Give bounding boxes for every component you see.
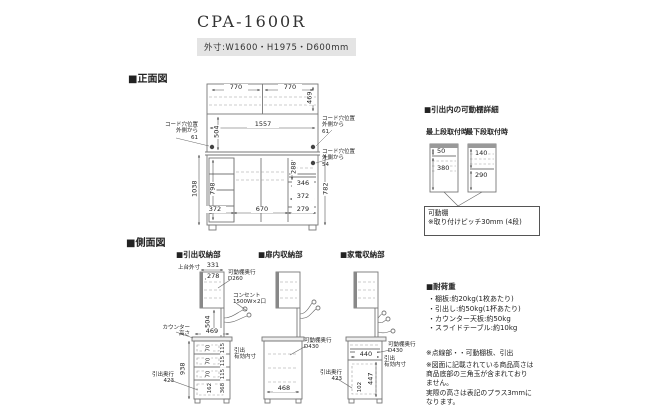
upper-outer-dim-label: 上台外寸 xyxy=(178,265,200,271)
drawer-pitch-dim-3: 115 xyxy=(220,368,226,381)
dim-469: 469 xyxy=(306,91,313,105)
dim-468: 468 xyxy=(273,385,295,392)
side-door-heading: ■扉内収納部 xyxy=(258,251,303,260)
dim-1038: 1038 xyxy=(192,179,199,198)
shelf-top-position-label: 最上段取付時 xyxy=(426,128,468,136)
drawer-inner-dim-1: 70 xyxy=(205,344,211,353)
dim-469-side: 469 xyxy=(201,328,223,335)
shelf-detail-heading: ■引出内の可動棚詳細 xyxy=(424,106,499,115)
load-item-counter: ・カウンター天板:約50kg xyxy=(428,315,521,325)
dim-798: 798 xyxy=(209,182,216,196)
drawer-pitch-dim-2: 115 xyxy=(220,355,226,368)
dim-50: 50 xyxy=(436,148,446,155)
dim-770-left: 770 xyxy=(224,84,248,91)
dim-938: 938 xyxy=(179,362,186,376)
dim-278: 278 xyxy=(206,273,220,280)
side-appliance-heading: ■家電収納部 xyxy=(340,251,385,260)
dim-331: 331 xyxy=(202,262,224,269)
movable-shelf-callout: 可動棚 ※取り付けピッチ30mm (4段) xyxy=(424,206,540,236)
drawer-inner-dim-4: 162 xyxy=(207,382,213,395)
drawer-effective-label: 引出 有効内寸 xyxy=(234,348,256,361)
drawer-inner-dim-3: 70 xyxy=(205,370,211,379)
dim-288: 288 xyxy=(290,161,297,175)
dim-380: 380 xyxy=(436,165,450,172)
load-capacity-heading: ■耐荷重 xyxy=(426,283,456,292)
dim-140: 140 xyxy=(474,150,488,157)
appliance-drawer-depth-label: 引出奥行 423 xyxy=(312,370,342,383)
dim-782: 782 xyxy=(322,182,329,196)
dim-770-right: 770 xyxy=(278,84,302,91)
shelf-depth-d430-door-label: 可動棚奥行 D430 xyxy=(304,338,332,351)
side-drawer-heading: ■引出収納部 xyxy=(176,251,221,260)
outer-dimensions-box: 外寸:W1600・H1975・D600mm xyxy=(197,38,356,56)
drawer-inner-dim-2: 70 xyxy=(205,357,211,366)
dim-290: 290 xyxy=(474,172,488,179)
cord-hole-label-right-top: コード穴位置 外側から 61 xyxy=(322,116,366,135)
front-view-heading: ■正面図 xyxy=(128,74,167,86)
drawer-depth-label: 引出奥行 423 xyxy=(144,372,174,385)
shelf-bottom-position-label: 最下段取付時 xyxy=(466,128,508,136)
load-capacity-list: ・棚板:約20kg(1枚あたり) ・引出し:約50kg(1杯あたり) ・カウンタ… xyxy=(428,295,521,334)
dim-346: 346 xyxy=(292,180,314,187)
load-item-drawer: ・引出し:約50kg(1杯あたり) xyxy=(428,305,521,315)
shelf-depth-d260-label: 可動棚奥行 D260 xyxy=(228,270,256,283)
load-item-slide-table: ・スライドテーブル:約10kg xyxy=(428,324,521,334)
appliance-effective-label: 引出 有効内寸 xyxy=(384,356,406,369)
dim-504-front: 504 xyxy=(213,125,220,139)
technical-drawing xyxy=(0,0,664,410)
drawer-pitch-dim-1: 115 xyxy=(220,342,226,355)
outlet-label: コンセント 1500W×2口 xyxy=(233,293,266,306)
dim-279: 279 xyxy=(292,206,314,213)
dotted-line-note: ※点線部・・可動棚板、引出 xyxy=(426,349,513,358)
counter-height-label: カウンター 高さ xyxy=(154,325,190,338)
product-dimension-sheet: CPA-1600R 外寸:W1600・H1975・D600mm ■正面図 770… xyxy=(0,0,664,410)
cord-hole-label-right-bottom: コード穴位置 外側から 54 xyxy=(322,149,366,168)
cord-hole-label-left: コード穴位置 外側から 61 xyxy=(142,122,198,141)
shelf-depth-d430-appliance-label: 可動棚奥行 D430 xyxy=(388,342,416,355)
dim-102: 102 xyxy=(357,381,363,394)
height-note: ※図面に記載されている商品高さは 商品底部の三角玉が含まれており ません。 実際… xyxy=(426,361,606,407)
dim-670: 670 xyxy=(251,206,273,213)
dim-372-right: 372 xyxy=(292,193,314,200)
load-item-shelf: ・棚板:約20kg(1枚あたり) xyxy=(428,295,521,305)
side-view-heading: ■側面図 xyxy=(126,238,165,250)
drawer-pitch-dim-4: 368 xyxy=(220,382,226,395)
dim-1557: 1557 xyxy=(247,121,279,128)
product-code-title: CPA-1600R xyxy=(197,12,306,31)
dim-447: 447 xyxy=(367,372,374,386)
dim-372-bottom: 372 xyxy=(204,206,226,213)
dim-440: 440 xyxy=(355,351,377,358)
